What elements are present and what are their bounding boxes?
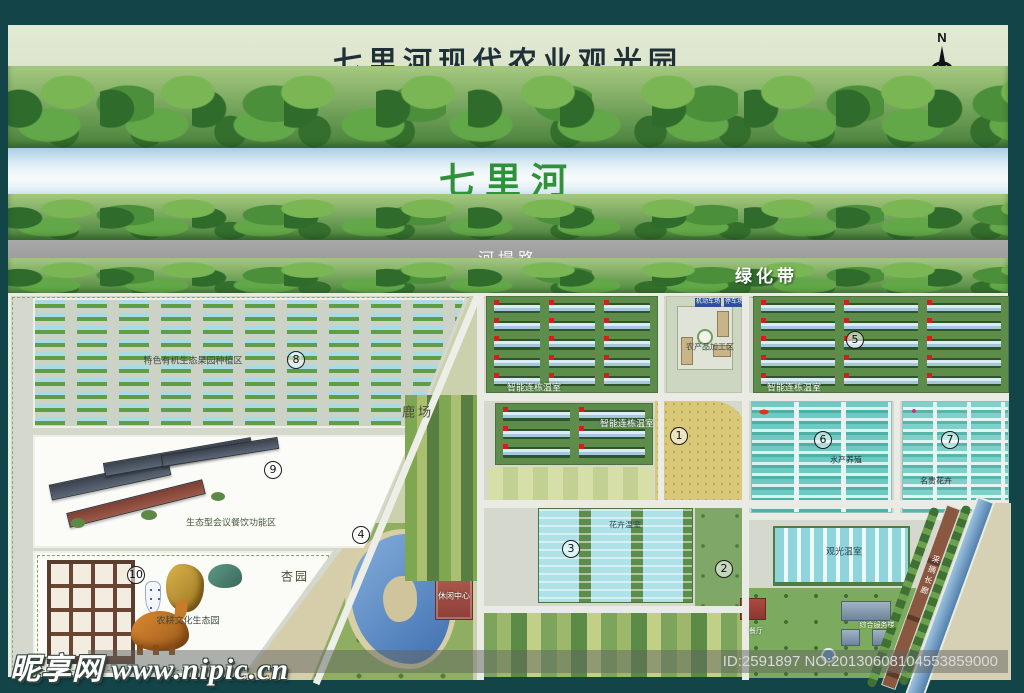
parking-sign: 停车场 [724,298,744,307]
service-building-label: 综合服务楼 [860,620,895,630]
site-plan-map: 机动车场 停车场 采摘长廊 特色有机生态果园种植区 [8,293,1008,677]
zone-marker-8: 8 [287,351,305,369]
zone1-field [655,401,747,509]
zone-marker-1: 1 [670,427,688,445]
zone-marker-7: 7 [941,431,959,449]
porcelain-vase [145,581,161,613]
service-building [841,601,891,621]
leisure-center-label: 休闲中心 [438,591,470,602]
smart-greenhouse-block-west [486,296,658,393]
green-belt [8,258,1008,296]
green-belt-label: 绿化带 [735,262,798,287]
zone-marker-10: 10 [127,566,145,584]
rare-flowers-label: 名贵花卉 [920,476,952,487]
lake-peninsula [383,576,417,622]
aquaculture-ponds [751,401,892,513]
zone-marker-9: 9 [264,461,282,479]
parking-sign: 机动车场 [695,298,721,307]
smart-greenhouse-label: 智能连栋温室 [767,381,821,394]
bush [71,518,85,528]
apricot-label: 杏园 [281,568,309,585]
tree-belt-top [8,66,1008,148]
flower-greenhouse-label: 花卉温室 [609,520,641,531]
crop-rows-center [488,467,653,500]
zone-marker-3: 3 [562,540,580,558]
parking-sign-label: 停车场 [725,299,743,305]
rare-flower-beds [902,401,1009,513]
crop-strips-west [405,395,483,581]
zone-marker-2: 2 [715,560,733,578]
parking-sign-label: 机动车场 [696,299,720,305]
restaurant-label: 餐厅 [749,626,763,636]
deer-farm-label: 鹿场 [402,402,434,421]
bush [141,510,157,520]
smart-greenhouse-block-east [753,296,1009,393]
aquaculture-label: 水产养殖 [830,455,862,466]
orchard-plot-grid [33,298,465,428]
road-horizontal [477,606,747,613]
processing-label: 农产品加工区 [686,342,734,353]
service-building-wing [841,629,860,646]
road-vertical [742,296,749,680]
bronze-horse [208,564,242,588]
north-label: N [920,30,964,45]
tree-belt-riverbank [8,194,1008,240]
bush [211,492,225,501]
zone2-green [695,508,744,610]
park-plan-poster: 七里河现代农业观光园 N 七里河 河堤路 绿化带 [0,0,1024,693]
smart-greenhouse-label: 智能连栋温室 [600,417,654,430]
processing-building [717,311,729,337]
culture-label: 农耕文化生态园 [156,614,219,627]
road-vertical [894,401,900,513]
road-horizontal [477,500,1009,508]
road-vertical [477,296,484,680]
road-horizontal [477,393,1009,401]
image-id-text: ID:2591897 NO:20130608104553859000 [723,653,998,670]
zone-marker-6: 6 [814,431,832,449]
orchard-label: 特色有机生态果园种植区 [143,354,242,367]
dining-label: 生态型会议餐饮功能区 [186,516,276,529]
zone-marker-4: 4 [352,526,370,544]
smart-greenhouse-label: 智能连栋温室 [507,381,561,394]
zone-marker-5: 5 [846,331,864,349]
sightseeing-label: 观光温室 [826,545,862,558]
road-vertical [658,296,664,508]
smart-greenhouse-block-center [495,403,653,465]
site-watermark: 昵享网 www.nipic.cn [10,644,289,688]
